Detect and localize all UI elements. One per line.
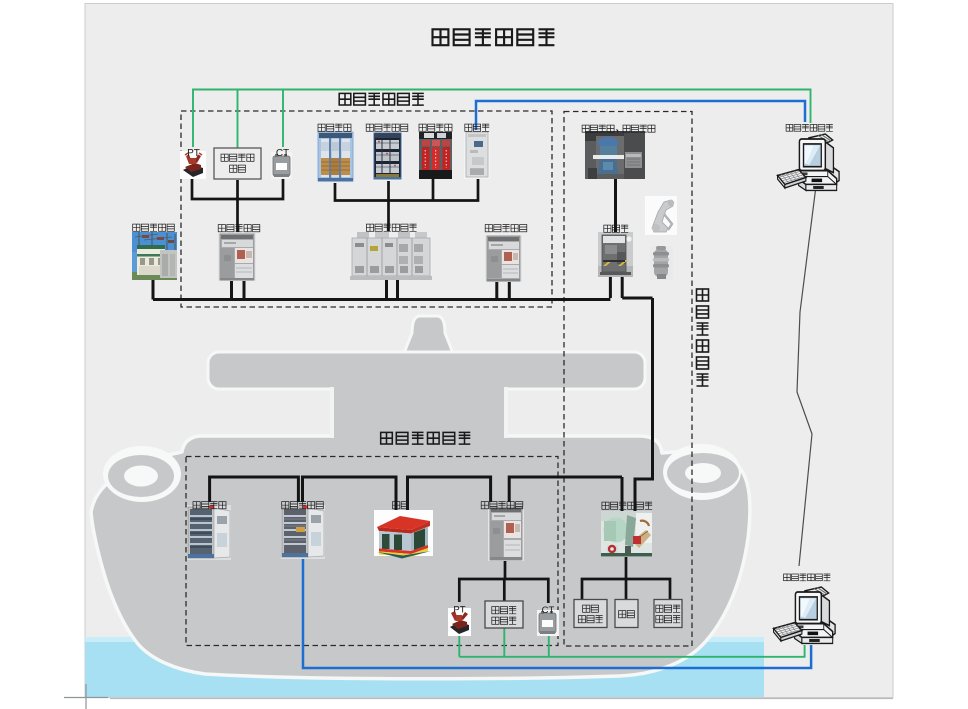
svg-text:PT: PT xyxy=(187,148,200,159)
svg-text:CT: CT xyxy=(542,605,555,616)
svg-text:PT: PT xyxy=(453,605,465,616)
svg-text:CT: CT xyxy=(276,148,289,159)
